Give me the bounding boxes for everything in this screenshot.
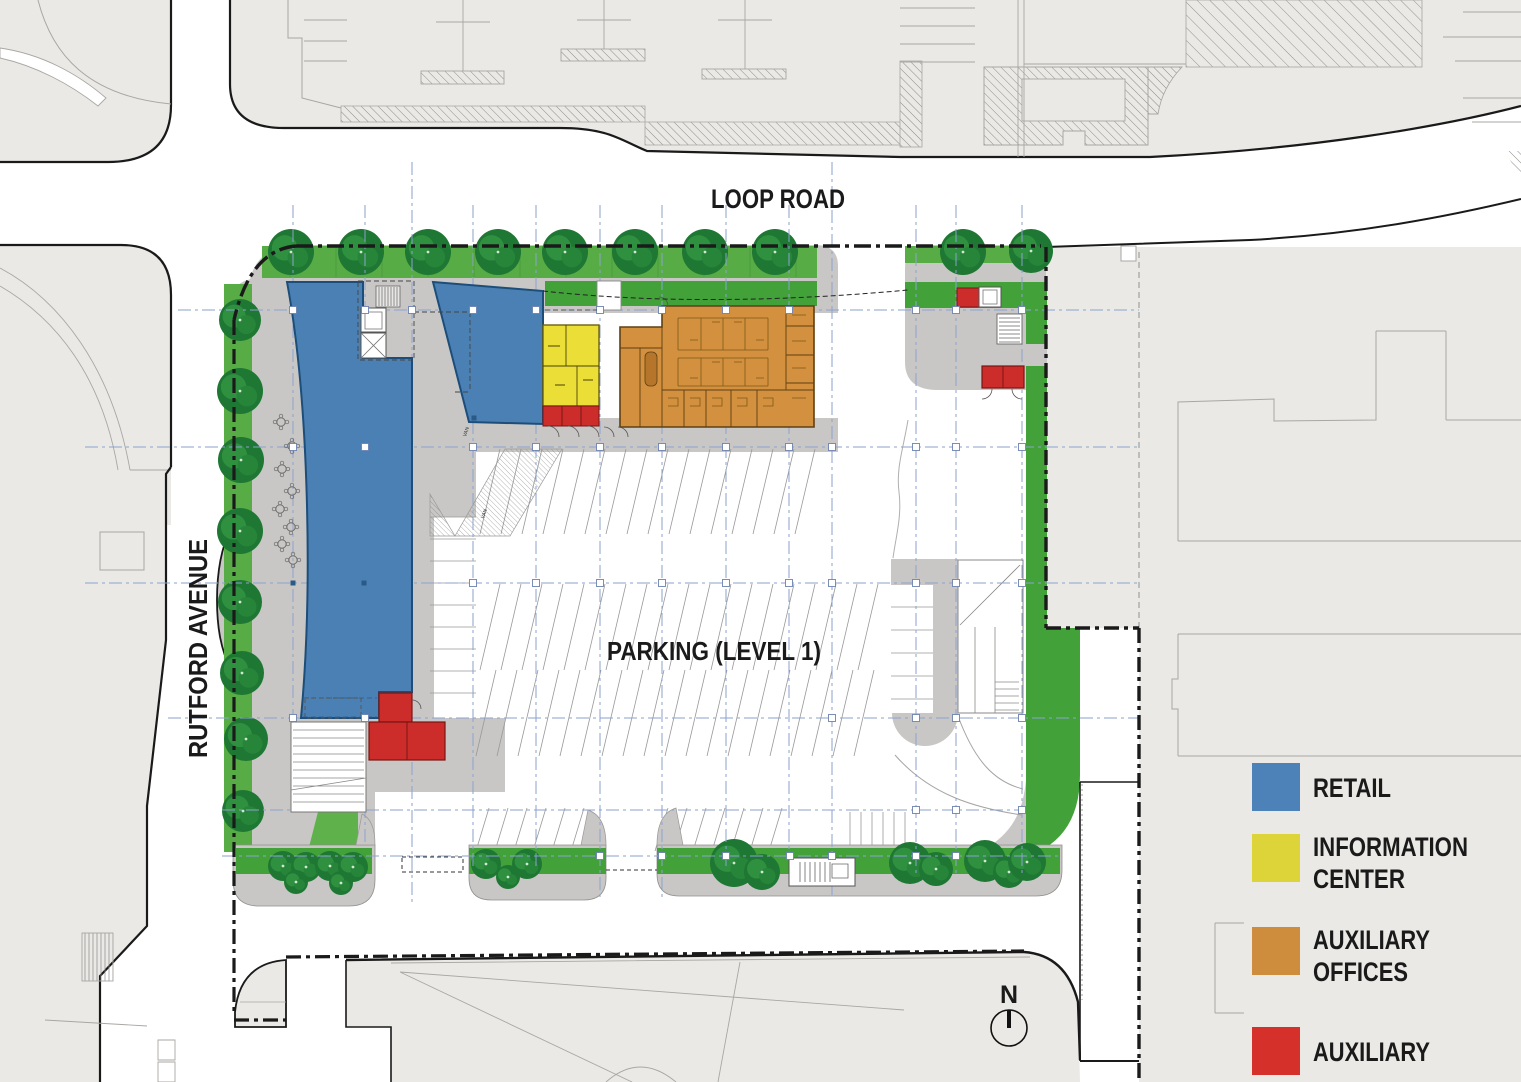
svg-text:N: N <box>1000 981 1018 1009</box>
svg-text:LOOP ROAD: LOOP ROAD <box>711 184 845 214</box>
svg-text:RUTFORD AVENUE: RUTFORD AVENUE <box>183 539 213 758</box>
svg-text:INFORMATION: INFORMATION <box>1313 832 1468 862</box>
svg-text:RETAIL: RETAIL <box>1313 773 1391 803</box>
svg-text:OFFICES: OFFICES <box>1313 957 1408 987</box>
svg-text:CENTER: CENTER <box>1313 864 1405 894</box>
svg-text:AUXILIARY: AUXILIARY <box>1313 1037 1430 1067</box>
svg-text:AUXILIARY: AUXILIARY <box>1313 925 1430 955</box>
svg-text:PARKING (LEVEL 1): PARKING (LEVEL 1) <box>607 636 821 666</box>
